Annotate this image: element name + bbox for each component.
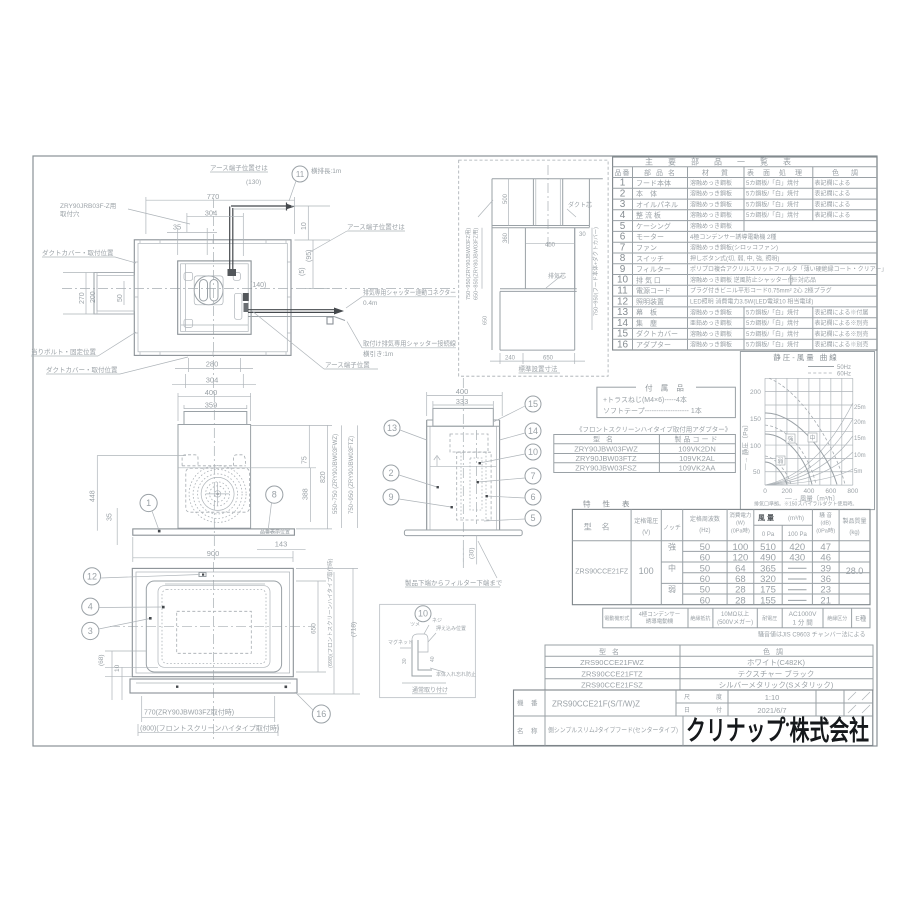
svg-text:付: 付 bbox=[716, 706, 722, 714]
svg-text:50: 50 bbox=[753, 469, 761, 476]
svg-text:175: 175 bbox=[760, 585, 776, 596]
svg-text:(dB): (dB) bbox=[821, 521, 832, 527]
svg-text:当りボルト・固定位置: 当りボルト・固定位置 bbox=[31, 347, 97, 356]
svg-text:(5): (5) bbox=[299, 267, 306, 276]
svg-text:溶融めっき鋼板: 溶融めっき鋼板 bbox=[690, 308, 732, 316]
svg-text:3: 3 bbox=[620, 199, 626, 210]
svg-text:0 Pa: 0 Pa bbox=[762, 532, 775, 538]
svg-text:10: 10 bbox=[301, 222, 308, 230]
svg-text:(Hz): (Hz) bbox=[699, 528, 710, 534]
svg-text:表面処理: 表面処理 bbox=[747, 168, 811, 177]
svg-text:5カ鋼板/「白」焼付: 5カ鋼板/「白」焼付 bbox=[746, 308, 799, 316]
svg-text:400: 400 bbox=[456, 387, 469, 396]
svg-text:溶融めっき鋼板 逆風防止シャッター付: 溶融めっき鋼板 逆風防止シャッター付 bbox=[690, 276, 794, 284]
svg-text:5カ鋼板/「白」焼付: 5カ鋼板/「白」焼付 bbox=[746, 190, 799, 198]
svg-text:500: 500 bbox=[503, 193, 509, 204]
svg-text:240: 240 bbox=[505, 356, 516, 362]
svg-text:13: 13 bbox=[387, 423, 397, 433]
svg-text:30: 30 bbox=[402, 658, 408, 664]
svg-text:表記欄による: 表記欄による bbox=[815, 190, 851, 198]
svg-text:溶融めっき鋼板: 溶融めっき鋼板 bbox=[690, 200, 732, 208]
svg-text:(68): (68) bbox=[98, 654, 105, 666]
svg-text:11: 11 bbox=[296, 170, 305, 179]
svg-text:0.4m: 0.4m bbox=[363, 300, 377, 307]
svg-text:(m³/h): (m³/h) bbox=[788, 516, 804, 522]
svg-text:650: 650 bbox=[483, 316, 489, 325]
svg-text:オイルパネル: オイルパネル bbox=[636, 201, 678, 209]
svg-text:耐電圧: 耐電圧 bbox=[762, 615, 777, 622]
svg-text:静圧-風量 曲線: 静圧-風量 曲線 bbox=[773, 352, 839, 362]
svg-text:1:10: 1:10 bbox=[765, 693, 780, 702]
svg-text:40: 40 bbox=[430, 656, 436, 662]
svg-text:60: 60 bbox=[700, 553, 711, 564]
svg-text:359: 359 bbox=[205, 401, 218, 410]
svg-text:5カ鋼板/「白」焼付: 5カ鋼板/「白」焼付 bbox=[746, 319, 799, 327]
svg-text:横排長:1m: 横排長:1m bbox=[311, 166, 341, 175]
svg-text:25m: 25m bbox=[854, 405, 866, 411]
svg-text:ZRY90JBW03FSZ: ZRY90JBW03FSZ bbox=[575, 464, 637, 473]
svg-text:中: 中 bbox=[668, 563, 676, 573]
svg-text:6: 6 bbox=[530, 492, 535, 502]
svg-text:1: 1 bbox=[620, 178, 626, 189]
svg-text:280: 280 bbox=[206, 360, 219, 369]
svg-text:電源コード: 電源コード bbox=[636, 286, 671, 295]
svg-text:10: 10 bbox=[418, 609, 428, 619]
svg-text:100: 100 bbox=[750, 443, 761, 450]
svg-text:型名: 型名 bbox=[593, 435, 619, 444]
svg-text:109VK2DN: 109VK2DN bbox=[678, 445, 716, 454]
svg-text:109VK2AL: 109VK2AL bbox=[679, 454, 715, 463]
svg-text:ZRS90CCE21FTZ: ZRS90CCE21FTZ bbox=[581, 669, 643, 678]
svg-text:(140): (140) bbox=[250, 282, 266, 289]
svg-text:取付け排気専用シャッター接続線: 取付け排気専用シャッター接続線 bbox=[363, 339, 456, 348]
svg-text:ダクト芯: ダクト芯 bbox=[568, 201, 592, 209]
svg-text:(0Pa時): (0Pa時) bbox=[816, 527, 835, 535]
svg-text:5カ鋼板/「白」焼付: 5カ鋼板/「白」焼付 bbox=[746, 200, 799, 208]
svg-text:クリナップ●株式会社: クリナップ●株式会社 bbox=[686, 715, 869, 746]
svg-text:プラグ付きビニル平形コード0.75mm² 2心 2極プラグ: プラグ付きビニル平形コード0.75mm² 2心 2極プラグ bbox=[690, 287, 832, 295]
svg-text:28: 28 bbox=[735, 595, 746, 606]
svg-text:100: 100 bbox=[639, 566, 654, 576]
svg-text:4: 4 bbox=[620, 210, 626, 221]
svg-text:ケーシング: ケーシング bbox=[636, 221, 671, 230]
svg-text:スイッチ: スイッチ bbox=[636, 255, 664, 263]
svg-text:100: 100 bbox=[732, 542, 748, 553]
svg-text:109VK2AA: 109VK2AA bbox=[679, 464, 716, 473]
svg-text:尺: 尺 bbox=[684, 694, 690, 701]
svg-text:取付穴: 取付穴 bbox=[60, 209, 80, 218]
svg-text:本体入れ忘れ防止: 本体入れ忘れ防止 bbox=[436, 671, 476, 678]
svg-text:16: 16 bbox=[617, 339, 629, 350]
svg-text:12: 12 bbox=[87, 571, 97, 581]
svg-text:テクスチャー ブラック: テクスチャー ブラック bbox=[738, 668, 815, 678]
svg-text:表記欄による※別売: 表記欄による※別売 bbox=[815, 319, 869, 327]
svg-text:5カ鋼板/「白」焼付: 5カ鋼板/「白」焼付 bbox=[746, 330, 799, 338]
svg-text:中: 中 bbox=[809, 434, 815, 442]
svg-text:10: 10 bbox=[617, 275, 629, 286]
svg-text:特性表: 特性表 bbox=[583, 499, 642, 509]
svg-text:320: 320 bbox=[760, 574, 776, 585]
svg-text:(kg): (kg) bbox=[849, 530, 859, 536]
svg-text:60: 60 bbox=[700, 595, 711, 606]
svg-text:型名: 型名 bbox=[584, 522, 620, 532]
svg-text:表記欄による※付属: 表記欄による※付属 bbox=[815, 308, 869, 316]
svg-text:304: 304 bbox=[206, 375, 219, 384]
svg-text:電動機形式: 電動機形式 bbox=[604, 615, 629, 622]
svg-text:称: 称 bbox=[531, 726, 538, 735]
svg-text:弱: 弱 bbox=[668, 585, 676, 594]
svg-text:ZRS90CCE21FWZ: ZRS90CCE21FWZ bbox=[580, 658, 644, 667]
svg-text:付 属 品: 付 属 品 bbox=[645, 383, 687, 393]
svg-text:(30): (30) bbox=[469, 547, 476, 559]
svg-text:風 量: 風 量 bbox=[757, 513, 774, 522]
svg-text:騒音値はJIS C9603 チャンバー法による: 騒音値はJIS C9603 チャンバー法による bbox=[758, 631, 865, 639]
svg-text:200: 200 bbox=[90, 291, 97, 303]
svg-text:60Hz: 60Hz bbox=[837, 372, 851, 378]
svg-text:750~950(ZRY90JBW03FZ用): 750~950(ZRY90JBW03FZ用) bbox=[465, 228, 472, 300]
svg-text:(0Pa時): (0Pa時) bbox=[731, 527, 750, 535]
svg-text:430: 430 bbox=[789, 553, 805, 564]
svg-text:30: 30 bbox=[579, 232, 586, 238]
svg-text:15m: 15m bbox=[854, 436, 866, 442]
svg-text:15: 15 bbox=[617, 329, 629, 340]
svg-text:品番表示位置: 品番表示位置 bbox=[260, 529, 290, 536]
svg-text:《フロントスクリーンハイタイプ取付用アダプター》: 《フロントスクリーンハイタイプ取付用アダプター》 bbox=[576, 425, 731, 434]
svg-text:5: 5 bbox=[620, 221, 626, 232]
svg-text:1 分 間: 1 分 間 bbox=[792, 618, 812, 627]
svg-text:強: 強 bbox=[668, 542, 676, 552]
svg-text:28: 28 bbox=[735, 585, 746, 596]
svg-text:8: 8 bbox=[620, 253, 626, 264]
svg-text:650: 650 bbox=[543, 356, 554, 362]
svg-text:10m: 10m bbox=[854, 453, 866, 459]
svg-text:表記欄による: 表記欄による bbox=[815, 200, 851, 208]
svg-text:9: 9 bbox=[388, 492, 393, 502]
svg-text:11: 11 bbox=[617, 286, 628, 297]
svg-text:304: 304 bbox=[205, 209, 218, 218]
svg-text:E種: E種 bbox=[855, 615, 866, 623]
svg-text:550~750 (ZRY90JBW03FWZ): 550~750 (ZRY90JBW03FWZ) bbox=[333, 434, 339, 514]
svg-text:0: 0 bbox=[763, 488, 767, 495]
svg-text:21: 21 bbox=[820, 595, 831, 606]
svg-text:7: 7 bbox=[530, 471, 535, 481]
svg-text:材質: 材質 bbox=[702, 168, 740, 177]
svg-text:フード本体: フード本体 bbox=[636, 178, 671, 187]
svg-text:(800)(フロントスクリーンハイタイプ取付時): (800)(フロントスクリーンハイタイプ取付時) bbox=[140, 724, 279, 733]
svg-text:ツメ: ツメ bbox=[410, 622, 420, 628]
svg-text:10MΩ以上: 10MΩ以上 bbox=[721, 610, 749, 618]
svg-text:50: 50 bbox=[117, 294, 124, 302]
svg-text:通常取り付け: 通常取り付け bbox=[412, 686, 448, 694]
svg-text:200: 200 bbox=[781, 488, 792, 495]
svg-text:モーター: モーター bbox=[636, 232, 664, 241]
svg-text:絶縁区分: 絶縁区分 bbox=[827, 615, 847, 622]
svg-text:10: 10 bbox=[114, 664, 121, 672]
svg-text:色調: 色調 bbox=[763, 647, 789, 656]
svg-text:490: 490 bbox=[760, 553, 776, 564]
svg-text:5カ鋼板/「白」焼付: 5カ鋼板/「白」焼付 bbox=[746, 341, 799, 349]
svg-text:388: 388 bbox=[303, 488, 310, 500]
svg-text:主要部品一覧表: 主要部品一覧表 bbox=[645, 157, 806, 167]
svg-text:900: 900 bbox=[207, 549, 220, 558]
svg-text:ZRY90JBW03FTZ: ZRY90JBW03FTZ bbox=[575, 454, 637, 463]
svg-text:ZRS90CCE21F(S/T/W)Z: ZRS90CCE21F(S/T/W)Z bbox=[552, 700, 640, 709]
svg-text:68: 68 bbox=[735, 574, 746, 585]
svg-text:名: 名 bbox=[517, 726, 524, 735]
svg-text:ソフトテープ------------------- 1本: ソフトテープ------------------- 1本 bbox=[603, 406, 702, 415]
svg-text:50: 50 bbox=[700, 585, 711, 596]
svg-text:5: 5 bbox=[530, 513, 535, 523]
svg-text:5カ鋼板/「白」焼付: 5カ鋼板/「白」焼付 bbox=[746, 179, 799, 187]
svg-text:365: 365 bbox=[760, 563, 776, 574]
svg-text:日: 日 bbox=[684, 707, 690, 714]
svg-text:155: 155 bbox=[760, 595, 776, 606]
svg-text:アース端子位置せは: アース端子位置せは bbox=[210, 163, 268, 172]
svg-text:ノッチ: ノッチ bbox=[663, 525, 681, 532]
svg-text:溶融めっき鋼板: 溶融めっき鋼板 bbox=[690, 330, 732, 338]
svg-text:溶融めっき鋼板: 溶融めっき鋼板 bbox=[690, 190, 732, 198]
svg-text:20m: 20m bbox=[854, 420, 866, 426]
svg-text:770(ZRY90JBW03FZ取付時): 770(ZRY90JBW03FZ取付時) bbox=[144, 708, 234, 717]
svg-text:2: 2 bbox=[388, 468, 393, 478]
svg-text:ダクトカバー・取付位置: ダクトカバー・取付位置 bbox=[46, 365, 118, 374]
svg-text:50: 50 bbox=[700, 542, 711, 553]
svg-text:510: 510 bbox=[760, 542, 776, 553]
svg-text:製品質量: 製品質量 bbox=[842, 517, 866, 525]
svg-text:35: 35 bbox=[107, 513, 114, 521]
svg-text:5m: 5m bbox=[854, 469, 862, 475]
svg-text:誘導電動機: 誘導電動機 bbox=[646, 617, 674, 625]
svg-text:400: 400 bbox=[803, 488, 814, 495]
svg-text:定格電圧: 定格電圧 bbox=[634, 517, 658, 525]
svg-text:4極コンデンサー: 4極コンデンサー bbox=[639, 610, 681, 618]
svg-text:50: 50 bbox=[700, 563, 711, 574]
svg-text:4: 4 bbox=[88, 602, 93, 612]
svg-text:消費電力: 消費電力 bbox=[729, 511, 751, 519]
svg-text:―→ 静圧〔Pa〕: ―→ 静圧〔Pa〕 bbox=[741, 421, 750, 470]
svg-text:表記欄による※別売: 表記欄による※別売 bbox=[815, 330, 869, 338]
svg-text:600: 600 bbox=[825, 488, 836, 495]
svg-text:集 塵: 集 塵 bbox=[636, 318, 657, 327]
svg-text:アダプター: アダプター bbox=[636, 340, 671, 349]
svg-text:溶融めっき鋼板: 溶融めっき鋼板 bbox=[690, 179, 732, 187]
svg-text:1: 1 bbox=[146, 498, 151, 508]
svg-text:アース端子位置せは: アース端子位置せは bbox=[347, 222, 405, 231]
svg-text:800: 800 bbox=[847, 488, 858, 495]
svg-text:溶融めっき鋼板: 溶融めっき鋼板 bbox=[690, 341, 732, 349]
svg-text:幕 板: 幕 板 bbox=[636, 308, 657, 317]
svg-text:ZRS90CCE21FSZ: ZRS90CCE21FSZ bbox=[581, 681, 643, 690]
svg-text:標準設置寸法: 標準設置寸法 bbox=[519, 364, 559, 373]
svg-text:騒 音: 騒 音 bbox=[819, 511, 832, 519]
svg-text:143: 143 bbox=[275, 539, 288, 548]
svg-text:側シンプルスリムJタイプフード(センタータイプ): 側シンプルスリムJタイプフード(センタータイプ) bbox=[548, 725, 678, 734]
svg-text:13: 13 bbox=[617, 307, 629, 318]
svg-text:3: 3 bbox=[88, 626, 93, 636]
svg-text:6: 6 bbox=[620, 232, 626, 243]
svg-text:9: 9 bbox=[620, 264, 626, 275]
svg-text:アース端子位置: アース端子位置 bbox=[325, 360, 370, 369]
svg-text:16: 16 bbox=[316, 709, 326, 719]
svg-text:(698)(フロントスクリーンハイタイプ取付時): (698)(フロントスクリーンハイタイプ取付時) bbox=[326, 558, 334, 668]
svg-text:押しボタン式(切, 弱, 中, 強, 照明): 押しボタン式(切, 弱, 中, 強, 照明) bbox=[690, 254, 779, 262]
svg-text:8: 8 bbox=[272, 490, 277, 500]
svg-text:5カ鋼板/「白」焼付: 5カ鋼板/「白」焼付 bbox=[746, 211, 799, 219]
svg-text:製品下端からフィルター下端まで: 製品下端からフィルター下端まで bbox=[405, 578, 503, 587]
svg-text:本 体: 本 体 bbox=[636, 189, 657, 198]
svg-text:横引き:1m: 横引き:1m bbox=[363, 349, 393, 358]
svg-text:770: 770 bbox=[207, 192, 220, 201]
svg-text:12: 12 bbox=[617, 296, 629, 307]
svg-text:14: 14 bbox=[528, 426, 538, 436]
svg-text:亜鉛めっき鋼板: 亜鉛めっき鋼板 bbox=[690, 319, 732, 327]
svg-text:強: 強 bbox=[787, 435, 793, 443]
svg-text:+トラスねじ(M4×6)-----4本: +トラスねじ(M4×6)-----4本 bbox=[603, 395, 687, 404]
svg-text:排気口準拠。※150スパイラルダクト使用時。: 排気口準拠。※150スパイラルダクト使用時。 bbox=[754, 501, 857, 508]
svg-text:照明装置: 照明装置 bbox=[636, 297, 664, 306]
svg-text:36: 36 bbox=[820, 574, 831, 585]
svg-text:排気専用シャッター連動コネクター: 排気専用シャッター連動コネクター bbox=[363, 288, 456, 297]
svg-text:360: 360 bbox=[503, 232, 509, 243]
svg-text:排気芯: 排気芯 bbox=[548, 272, 566, 280]
svg-text:ZRS90CCE21FZ: ZRS90CCE21FZ bbox=[575, 569, 629, 576]
svg-text:39: 39 bbox=[820, 563, 831, 574]
svg-text:60: 60 bbox=[700, 574, 711, 585]
svg-text:※対応品: ※対応品 bbox=[792, 276, 816, 284]
svg-text:820: 820 bbox=[320, 471, 327, 483]
svg-text:46: 46 bbox=[820, 553, 831, 564]
svg-text:28.0: 28.0 bbox=[846, 566, 864, 576]
svg-text:448: 448 bbox=[90, 490, 97, 502]
svg-text:(130): (130) bbox=[246, 179, 261, 186]
svg-text:7: 7 bbox=[620, 242, 626, 253]
svg-text:型名: 型名 bbox=[599, 647, 625, 656]
svg-text:定格周波数: 定格周波数 bbox=[690, 515, 720, 523]
svg-text:表記欄による※別売: 表記欄による※別売 bbox=[815, 341, 869, 349]
svg-text:650: 650 bbox=[311, 623, 318, 634]
svg-text:番: 番 bbox=[531, 699, 538, 707]
svg-text:度: 度 bbox=[716, 693, 722, 701]
svg-text:絶縁抵抗: 絶縁抵抗 bbox=[690, 615, 710, 622]
svg-text:14: 14 bbox=[617, 318, 629, 329]
svg-text:(500Vメガー): (500Vメガー) bbox=[717, 618, 753, 626]
svg-text:ネジ: ネジ bbox=[432, 618, 442, 624]
svg-text:ファン: ファン bbox=[636, 244, 657, 252]
svg-text:ZRY90JRB03F-Z用: ZRY90JRB03F-Z用 bbox=[60, 202, 116, 210]
svg-text:333: 333 bbox=[456, 397, 469, 406]
svg-text:35: 35 bbox=[173, 223, 181, 232]
svg-text:部品名: 部品名 bbox=[644, 168, 680, 177]
svg-text:機: 機 bbox=[517, 698, 524, 707]
svg-text:排 気 口: 排 気 口 bbox=[636, 275, 661, 284]
svg-text:64: 64 bbox=[735, 563, 746, 574]
svg-text:(95): (95) bbox=[306, 250, 313, 262]
svg-text:弱: 弱 bbox=[777, 458, 783, 465]
svg-text:色調: 色調 bbox=[832, 168, 870, 177]
svg-text:(W): (W) bbox=[736, 521, 745, 527]
svg-text:押え込み位置: 押え込み位置 bbox=[436, 625, 466, 632]
svg-text:ZRY90JBW03FWZ: ZRY90JBW03FWZ bbox=[574, 445, 638, 454]
svg-text:LED照明 消費電力3.5W(LED電球10 相当電球): LED照明 消費電力3.5W(LED電球10 相当電球) bbox=[690, 298, 813, 306]
svg-text:ポリプロ複合アクリルスリットフィルタ「薄い硬絶縁コート・クリ: ポリプロ複合アクリルスリットフィルタ「薄い硬絶縁コート・クリアー」 bbox=[690, 265, 887, 273]
svg-text:750~950(フード本体+ダクトカバー): 750~950(フード本体+ダクトカバー) bbox=[592, 227, 600, 316]
svg-text:100 Pa: 100 Pa bbox=[788, 532, 808, 538]
svg-text:120: 120 bbox=[732, 553, 748, 564]
svg-text:品番: 品番 bbox=[615, 169, 631, 177]
svg-text:製品コード: 製品コード bbox=[675, 435, 720, 444]
svg-text:4極コンデンサー誘導電動機 2種: 4極コンデンサー誘導電動機 2種 bbox=[690, 233, 776, 241]
svg-text:200: 200 bbox=[750, 389, 761, 396]
svg-text:ダクトカバー: ダクトカバー bbox=[636, 329, 678, 338]
svg-text:ダクトカバー・取付位置: ダクトカバー・取付位置 bbox=[42, 248, 114, 257]
svg-text:AC1000V: AC1000V bbox=[789, 611, 817, 618]
svg-text:420: 420 bbox=[789, 542, 805, 553]
svg-text:溶融めっき鋼板: 溶融めっき鋼板 bbox=[690, 222, 732, 230]
svg-text:フィルター: フィルター bbox=[636, 265, 671, 274]
svg-text:75: 75 bbox=[302, 456, 309, 464]
svg-text:表記欄による: 表記欄による bbox=[815, 211, 851, 219]
svg-text:50Hz: 50Hz bbox=[837, 365, 851, 371]
svg-text:450: 450 bbox=[545, 243, 556, 249]
svg-text:10: 10 bbox=[528, 447, 538, 457]
svg-text:650~850(ZRY80JBW03FZ用): 650~850(ZRY80JBW03FZ用) bbox=[473, 228, 480, 300]
svg-text:47: 47 bbox=[820, 542, 831, 553]
svg-text:溶融めっき鋼板(シロッコファン): 溶融めっき鋼板(シロッコファン) bbox=[690, 244, 778, 252]
svg-text:750~950 (ZRY90JBW03FTZ): 750~950 (ZRY90JBW03FTZ) bbox=[349, 436, 355, 514]
svg-text:2021/6/7: 2021/6/7 bbox=[757, 706, 786, 715]
svg-text:(718): (718) bbox=[351, 622, 358, 637]
svg-text:(V): (V) bbox=[642, 530, 650, 536]
svg-text:270: 270 bbox=[79, 292, 86, 304]
svg-text:2: 2 bbox=[620, 189, 626, 200]
svg-text:表記欄による: 表記欄による bbox=[815, 179, 851, 187]
svg-text:23: 23 bbox=[820, 585, 831, 596]
svg-text:15: 15 bbox=[528, 399, 538, 409]
svg-text:150: 150 bbox=[750, 416, 761, 423]
svg-text:整 流 板: 整 流 板 bbox=[636, 211, 661, 220]
svg-text:溶融めっき鋼板: 溶融めっき鋼板 bbox=[690, 211, 732, 219]
svg-text:400: 400 bbox=[205, 388, 218, 397]
svg-text:マグネット: マグネット bbox=[388, 639, 413, 646]
svg-text:シルバーメタリック(Sメタリック): シルバーメタリック(Sメタリック) bbox=[719, 681, 834, 690]
svg-text:ホワイト(C482K): ホワイト(C482K) bbox=[747, 658, 805, 667]
